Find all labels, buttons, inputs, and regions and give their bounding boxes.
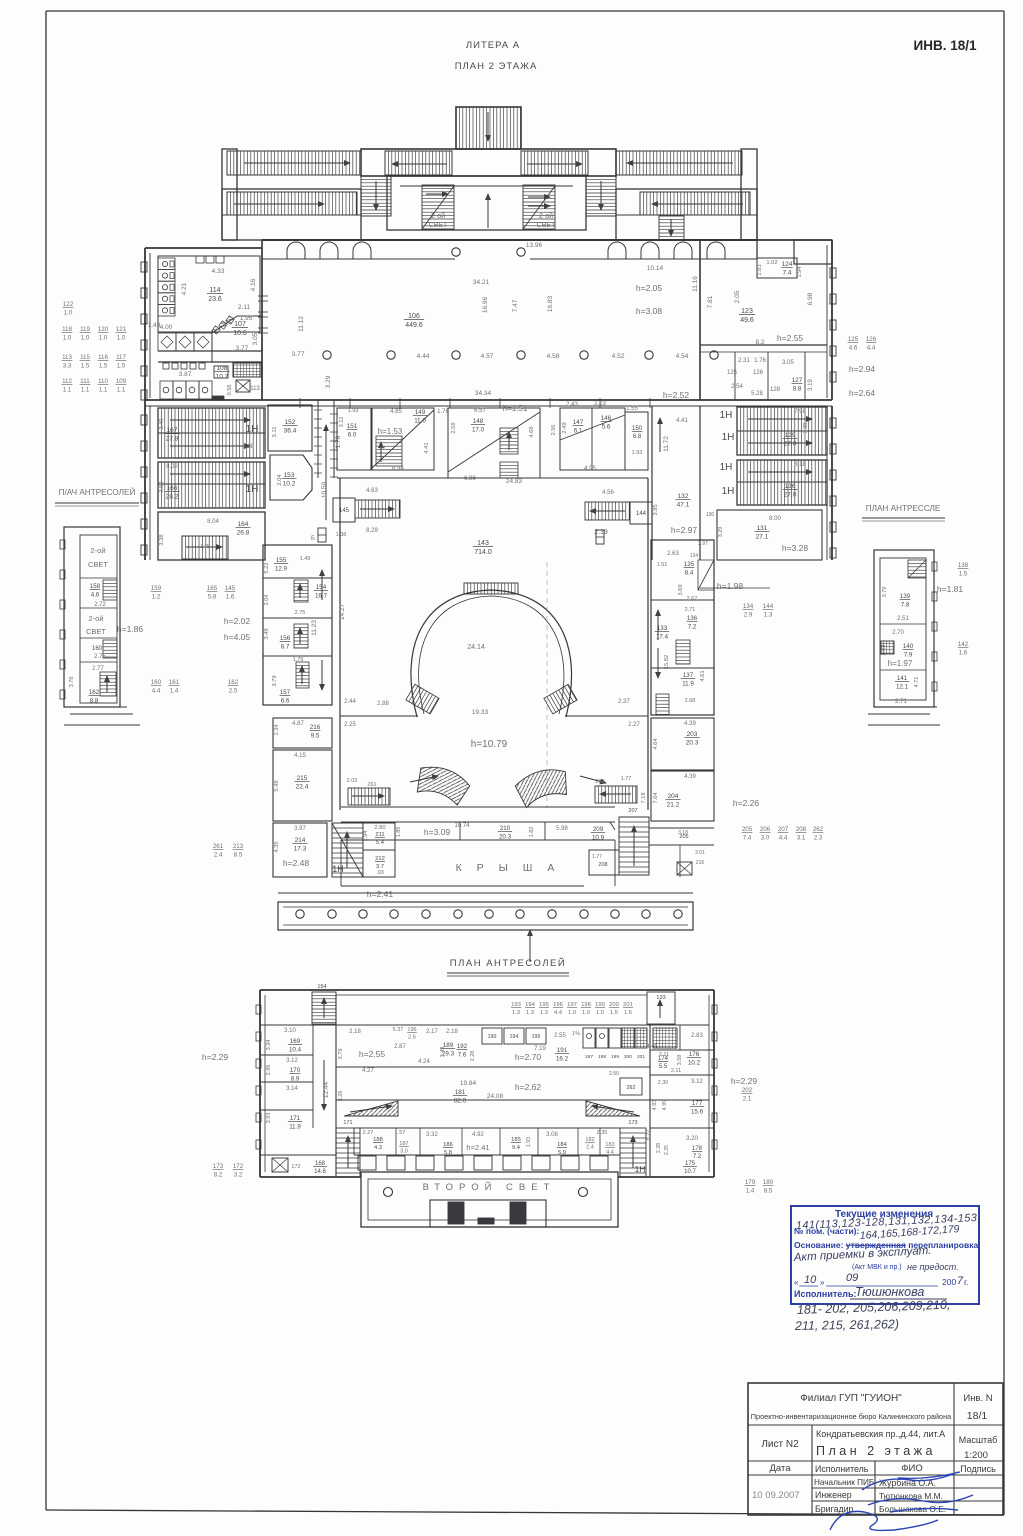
svg-text:3.18: 3.18	[678, 830, 688, 836]
svg-text:200: 200	[609, 1002, 619, 1008]
svg-text:157: 157	[280, 689, 291, 696]
svg-text:h=1.51: h=1.51	[503, 404, 528, 413]
svg-text:3.05: 3.05	[782, 360, 794, 366]
svg-text:216: 216	[696, 860, 705, 866]
svg-text:24.14: 24.14	[467, 644, 485, 651]
svg-text:1.6: 1.6	[959, 649, 968, 656]
svg-text:3.32: 3.32	[426, 1132, 438, 1138]
svg-text:107: 107	[234, 321, 246, 328]
svg-text:2-ой: 2-ой	[90, 546, 105, 555]
svg-text:2.35: 2.35	[597, 1130, 608, 1136]
svg-text:206: 206	[760, 826, 771, 833]
svg-text:1.3: 1.3	[526, 1010, 534, 1016]
svg-text:4.15: 4.15	[294, 753, 306, 759]
svg-text:1.4: 1.4	[746, 1187, 755, 1194]
svg-text:145: 145	[200, 544, 209, 550]
svg-text:4.21: 4.21	[181, 282, 188, 295]
svg-text:СВЕТ: СВЕТ	[86, 627, 106, 636]
svg-text:Тюшюнкова: Тюшюнкова	[855, 1285, 924, 1299]
svg-text:h=4.05: h=4.05	[224, 632, 251, 642]
svg-text:h=2.94: h=2.94	[849, 364, 876, 374]
svg-text:2.28: 2.28	[656, 1143, 662, 1153]
svg-text:2.50: 2.50	[609, 1071, 619, 1077]
svg-text:161: 161	[169, 679, 180, 686]
svg-text:214: 214	[295, 837, 306, 844]
svg-text:11.9: 11.9	[289, 1123, 301, 1130]
svg-text:16.7: 16.7	[315, 592, 328, 599]
svg-text:183: 183	[605, 1142, 614, 1148]
svg-text:1.3: 1.3	[764, 611, 773, 618]
svg-text:6.8: 6.8	[633, 434, 642, 440]
svg-text:4.6: 4.6	[849, 344, 858, 351]
svg-text:1.1: 1.1	[99, 386, 108, 393]
svg-text:1Н: 1Н	[246, 484, 259, 495]
svg-text:1Н: 1Н	[246, 424, 259, 435]
svg-text:714.0: 714.0	[474, 549, 492, 556]
svg-text:131: 131	[757, 525, 768, 532]
svg-text:5.9: 5.9	[558, 1150, 566, 1156]
svg-text:h=2.41: h=2.41	[466, 1143, 489, 1152]
svg-text:1.6: 1.6	[226, 593, 235, 600]
svg-text:127: 127	[792, 377, 803, 384]
svg-text:114: 114	[209, 287, 220, 294]
svg-text:4.56: 4.56	[602, 490, 614, 496]
svg-text:5.5: 5.5	[659, 1064, 668, 1070]
svg-text:125: 125	[727, 370, 738, 376]
svg-text:4.92: 4.92	[472, 1132, 484, 1138]
svg-text:204: 204	[668, 793, 679, 800]
svg-text:207: 207	[778, 826, 789, 833]
svg-text:212: 212	[375, 856, 385, 862]
svg-text:h=2.55: h=2.55	[359, 1049, 386, 1059]
svg-text:175: 175	[685, 1161, 696, 1167]
svg-text:171: 171	[290, 1115, 301, 1122]
svg-text:3.12: 3.12	[339, 417, 345, 428]
svg-text:1.92: 1.92	[375, 446, 386, 452]
svg-text:Инв. N: Инв. N	[963, 1393, 992, 1404]
svg-text:14.6: 14.6	[314, 1169, 326, 1175]
svg-text:2.68: 2.68	[685, 698, 696, 704]
svg-text:4.63: 4.63	[366, 488, 378, 494]
svg-text:2.71: 2.71	[685, 607, 696, 613]
svg-text:3.78: 3.78	[69, 677, 75, 688]
svg-text:3.59: 3.59	[159, 481, 165, 492]
svg-text:165: 165	[207, 585, 218, 592]
svg-text:2.5: 2.5	[229, 687, 238, 694]
svg-text:24.08: 24.08	[487, 1093, 504, 1100]
svg-text:2.55: 2.55	[554, 1033, 566, 1039]
svg-text:195: 195	[532, 1034, 541, 1040]
svg-text:109: 109	[116, 378, 127, 385]
svg-text:3.29: 3.29	[718, 527, 724, 538]
svg-text:3.78: 3.78	[338, 1048, 344, 1059]
svg-text:147: 147	[573, 419, 584, 426]
svg-text:2-ой: 2-ой	[88, 614, 103, 623]
svg-text:3.29: 3.29	[325, 375, 332, 388]
svg-text:3.87: 3.87	[179, 371, 192, 378]
svg-text:h=2.02: h=2.02	[224, 616, 251, 626]
svg-text:1.0: 1.0	[81, 334, 90, 341]
svg-text:21.2: 21.2	[667, 802, 680, 809]
svg-text:4.41: 4.41	[424, 442, 430, 453]
svg-text:162: 162	[228, 679, 239, 686]
svg-text:2.77: 2.77	[92, 666, 104, 672]
svg-text:139: 139	[900, 593, 911, 600]
svg-text:3.79: 3.79	[882, 587, 888, 598]
svg-text:3.10: 3.10	[284, 1028, 296, 1034]
svg-text:153: 153	[284, 472, 295, 479]
svg-text:10.14: 10.14	[647, 265, 664, 272]
svg-text:10 09.2007: 10 09.2007	[752, 1490, 800, 1501]
svg-text:28.2: 28.2	[166, 494, 179, 501]
svg-text:Филиал ГУП "ГУИОН": Филиал ГУП "ГУИОН"	[800, 1393, 902, 1404]
svg-text:194: 194	[525, 1002, 535, 1008]
svg-text:h=2.97: h=2.97	[671, 525, 698, 535]
svg-text:4.44: 4.44	[417, 353, 430, 360]
svg-text:2.05: 2.05	[734, 290, 741, 303]
svg-text:3.0: 3.0	[400, 1149, 408, 1155]
svg-text:2.51: 2.51	[897, 616, 909, 622]
svg-text:203: 203	[687, 731, 698, 738]
svg-text:2.75: 2.75	[94, 654, 106, 660]
svg-text:146: 146	[601, 415, 612, 422]
svg-text:4.71: 4.71	[914, 677, 920, 688]
svg-text:187: 187	[399, 1141, 408, 1147]
svg-text:h=2.52: h=2.52	[663, 390, 690, 400]
svg-text:1Н: 1Н	[722, 432, 735, 443]
svg-text:8.02: 8.02	[166, 464, 178, 470]
svg-text:h=1.81: h=1.81	[937, 584, 964, 594]
svg-text:196: 196	[407, 1027, 416, 1033]
svg-text:133: 133	[656, 995, 665, 1001]
svg-text:129: 129	[785, 432, 796, 439]
svg-text:155: 155	[276, 557, 287, 564]
svg-text:4.4: 4.4	[152, 687, 161, 694]
svg-text:166: 166	[167, 485, 178, 492]
svg-text:1.51: 1.51	[657, 562, 668, 568]
svg-text:h=10.79: h=10.79	[471, 739, 508, 750]
svg-text:7.9: 7.9	[904, 651, 913, 658]
svg-text:2.30: 2.30	[658, 1080, 669, 1086]
svg-text:1.93: 1.93	[348, 408, 359, 414]
svg-text:4.4: 4.4	[554, 1010, 563, 1016]
svg-text:106: 106	[408, 313, 420, 320]
svg-text:2-ой: 2-ой	[539, 212, 553, 220]
svg-text:1.3: 1.3	[512, 1010, 520, 1016]
svg-text:3.19: 3.19	[808, 379, 814, 391]
svg-text:200: 200	[624, 1054, 632, 1060]
svg-text:4.95: 4.95	[584, 466, 596, 472]
svg-text:ПЛАН АНТРЕССЛЕ: ПЛАН АНТРЕССЛЕ	[866, 504, 941, 513]
svg-text:8.2: 8.2	[214, 1171, 223, 1178]
svg-text:160: 160	[151, 679, 162, 686]
svg-text:7.18: 7.18	[641, 792, 647, 803]
svg-text:ПЛАН 2 ЭТАЖА: ПЛАН 2 ЭТАЖА	[455, 61, 538, 72]
svg-text:h=2.05: h=2.05	[636, 283, 663, 293]
svg-text:149: 149	[415, 409, 426, 416]
svg-text:14.27: 14.27	[339, 603, 346, 620]
svg-text:ФИО: ФИО	[901, 1463, 922, 1474]
svg-text:1Н: 1Н	[720, 410, 733, 421]
svg-text:5.6: 5.6	[602, 423, 611, 430]
svg-text:3.0: 3.0	[761, 834, 770, 841]
svg-text:27.0: 27.0	[784, 441, 797, 448]
svg-text:1.57: 1.57	[395, 1130, 406, 1136]
svg-text:262: 262	[813, 826, 824, 833]
svg-text:1.76: 1.76	[754, 358, 766, 364]
svg-text:3.14: 3.14	[286, 1086, 298, 1092]
svg-text:2.04: 2.04	[277, 474, 283, 486]
svg-text:№ пом. (части):: № пом. (части):	[794, 1226, 860, 1236]
svg-text:110: 110	[98, 378, 108, 385]
svg-text:261: 261	[213, 843, 224, 850]
svg-text:3.12: 3.12	[286, 1058, 298, 1064]
svg-text:1.1: 1.1	[63, 386, 72, 393]
svg-text:ПЛАН АНТРЕСОЛЕЙ: ПЛАН АНТРЕСОЛЕЙ	[450, 957, 566, 969]
svg-text:159: 159	[151, 585, 162, 592]
svg-text:118: 118	[62, 326, 72, 333]
svg-text:2.56: 2.56	[551, 425, 557, 436]
svg-text:4.00: 4.00	[160, 324, 173, 331]
svg-text:8.8: 8.8	[793, 385, 802, 392]
svg-text:2.83: 2.83	[691, 1033, 703, 1039]
svg-text:3.12: 3.12	[691, 1079, 703, 1085]
svg-text:1.4: 1.4	[170, 687, 179, 694]
svg-text:1.77: 1.77	[621, 776, 632, 782]
svg-text:126: 126	[866, 336, 877, 343]
svg-text:211, 215, 261,262): 211, 215, 261,262)	[794, 1317, 899, 1333]
svg-text:2.1: 2.1	[743, 1095, 752, 1102]
svg-text:3.34: 3.34	[266, 1040, 272, 1051]
svg-text:200: 200	[942, 1277, 956, 1287]
svg-text:Б: Б	[311, 536, 315, 542]
svg-text:8.5: 8.5	[234, 851, 243, 858]
svg-text:4.99: 4.99	[662, 1100, 668, 1111]
svg-text:113: 113	[62, 354, 72, 361]
svg-text:1.78: 1.78	[335, 435, 342, 448]
svg-text:1.0: 1.0	[63, 334, 72, 341]
svg-text:3.08: 3.08	[546, 1132, 558, 1138]
svg-text:198: 198	[598, 1054, 606, 1060]
svg-text:6.86: 6.86	[464, 476, 476, 482]
svg-text:2.17: 2.17	[426, 1029, 438, 1035]
svg-text:6.6: 6.6	[281, 697, 290, 704]
svg-text:4.3: 4.3	[374, 1145, 382, 1151]
svg-text:7.8: 7.8	[901, 601, 910, 608]
svg-text:10.2: 10.2	[283, 481, 296, 488]
svg-text:185: 185	[511, 1137, 521, 1143]
svg-text:Начальник ПИБ: Начальник ПИБ	[814, 1478, 874, 1487]
svg-text:3.11: 3.11	[272, 427, 278, 438]
svg-text:199: 199	[611, 1054, 619, 1060]
svg-text:156: 156	[280, 635, 291, 642]
svg-text:188: 188	[373, 1137, 383, 1143]
svg-text:197: 197	[567, 1002, 577, 1008]
svg-text:1.0: 1.0	[64, 309, 73, 316]
svg-text:47.1: 47.1	[677, 502, 690, 509]
svg-text:167: 167	[167, 427, 178, 434]
svg-text:119: 119	[80, 326, 90, 333]
svg-text:36.4: 36.4	[284, 428, 297, 435]
svg-text:176: 176	[689, 1051, 700, 1058]
svg-text:195: 195	[539, 1002, 549, 1008]
svg-text:1.5: 1.5	[99, 362, 108, 369]
svg-text:1.02: 1.02	[766, 260, 777, 266]
svg-text:4.57: 4.57	[481, 353, 494, 360]
svg-text:10.4: 10.4	[289, 1046, 302, 1053]
svg-text:202: 202	[742, 1087, 753, 1094]
svg-text:2.4: 2.4	[586, 1145, 594, 1151]
svg-text:1.55: 1.55	[626, 406, 638, 412]
svg-text:4.58: 4.58	[547, 353, 560, 360]
svg-text:27.1: 27.1	[756, 534, 769, 541]
svg-text:215: 215	[297, 775, 308, 782]
svg-text:24.83: 24.83	[506, 478, 523, 485]
svg-text:154: 154	[317, 984, 326, 990]
svg-text:h=3.28: h=3.28	[782, 543, 809, 553]
svg-text:2.87: 2.87	[394, 1044, 406, 1050]
svg-text:2.03: 2.03	[347, 778, 358, 784]
svg-text:1.82: 1.82	[529, 827, 535, 838]
svg-text:7.81: 7.81	[707, 295, 714, 308]
svg-text:2.01: 2.01	[695, 850, 705, 856]
svg-text:4.52: 4.52	[612, 353, 625, 360]
svg-text:6.98: 6.98	[807, 292, 814, 305]
svg-text:2.49: 2.49	[562, 422, 568, 433]
svg-text:2.80: 2.80	[374, 825, 385, 831]
svg-text:193: 193	[511, 1002, 521, 1008]
svg-text:8.04: 8.04	[207, 519, 219, 525]
svg-text:179: 179	[745, 1179, 756, 1186]
svg-text:1.5: 1.5	[81, 362, 90, 369]
svg-text:2.72: 2.72	[94, 602, 106, 608]
svg-text:201: 201	[637, 1054, 645, 1060]
svg-text:h=2.29: h=2.29	[202, 1052, 229, 1062]
svg-text:2.23: 2.23	[594, 401, 606, 407]
svg-text:10.59: 10.59	[321, 481, 328, 498]
svg-text:К Р Ы Ш А: К Р Ы Ш А	[456, 862, 561, 874]
svg-text:h=2.29: h=2.29	[731, 1076, 758, 1086]
svg-text:115: 115	[80, 354, 90, 361]
svg-text:h=2.41: h=2.41	[367, 889, 394, 899]
svg-text:174: 174	[658, 1056, 669, 1062]
svg-text:4.61: 4.61	[700, 670, 706, 681]
svg-text:7.2: 7.2	[688, 623, 697, 630]
svg-text:116: 116	[98, 354, 108, 361]
svg-text:1.95: 1.95	[240, 315, 253, 322]
svg-text:План 2 этажа: План 2 этажа	[816, 1444, 936, 1458]
svg-text:122: 122	[63, 301, 74, 308]
svg-text:7.47: 7.47	[512, 299, 519, 312]
svg-text:5.8: 5.8	[208, 593, 217, 600]
svg-text:23.6: 23.6	[208, 296, 222, 303]
svg-text:«: «	[794, 1278, 799, 1287]
svg-text:5.4: 5.4	[376, 840, 385, 846]
svg-text:1.0: 1.0	[117, 334, 126, 341]
svg-text:17.3: 17.3	[294, 846, 307, 853]
svg-text:16.96: 16.96	[482, 296, 489, 313]
svg-text:2.71: 2.71	[895, 699, 907, 705]
svg-text:124: 124	[782, 261, 793, 268]
svg-text:3.20: 3.20	[686, 1136, 698, 1142]
svg-text:h=3.08: h=3.08	[636, 306, 663, 316]
svg-text:113: 113	[250, 386, 260, 392]
svg-text:7.2: 7.2	[693, 1154, 702, 1160]
svg-text:181: 181	[455, 1089, 466, 1096]
svg-text:10.74: 10.74	[454, 823, 470, 829]
svg-text:2.6: 2.6	[408, 1035, 416, 1041]
svg-text:не предост.: не предост.	[907, 1262, 959, 1272]
svg-text:130: 130	[706, 512, 715, 518]
svg-text:145: 145	[225, 585, 236, 592]
svg-text:7.6: 7.6	[458, 1051, 467, 1058]
svg-text:h=2.62: h=2.62	[515, 1082, 542, 1092]
svg-text:144: 144	[636, 511, 647, 517]
svg-text:6.57: 6.57	[474, 408, 486, 414]
svg-text:1.0: 1.0	[99, 334, 108, 341]
svg-text:34.34: 34.34	[475, 390, 492, 397]
svg-text:198: 198	[581, 1002, 591, 1008]
svg-text:2.3: 2.3	[814, 834, 823, 841]
svg-text:5.22: 5.22	[264, 562, 270, 573]
svg-text:20.3: 20.3	[686, 740, 699, 747]
svg-text:2.18: 2.18	[349, 1029, 361, 1035]
svg-text:1.0: 1.0	[596, 1010, 604, 1016]
svg-text:1Н: 1Н	[720, 462, 733, 473]
svg-text:136: 136	[785, 483, 796, 490]
svg-text:3.77: 3.77	[292, 351, 305, 358]
svg-text:3.97: 3.97	[294, 826, 306, 832]
svg-text:112: 112	[62, 378, 72, 385]
svg-text:171: 171	[343, 1120, 352, 1126]
svg-text:2.75: 2.75	[295, 610, 306, 616]
svg-text:208: 208	[598, 862, 607, 868]
svg-text:3.38: 3.38	[159, 534, 165, 545]
svg-text:4.87: 4.87	[292, 721, 304, 727]
svg-text:191: 191	[557, 1047, 568, 1054]
svg-text:»: »	[820, 1278, 825, 1287]
svg-text:6.0: 6.0	[348, 431, 357, 438]
svg-text:г.: г.	[964, 1277, 968, 1287]
svg-text:3.05: 3.05	[252, 332, 259, 345]
svg-text:184: 184	[557, 1142, 567, 1148]
svg-text:3.93: 3.93	[266, 1113, 272, 1124]
svg-text:169: 169	[290, 1038, 301, 1045]
svg-text:2.70: 2.70	[892, 630, 904, 636]
svg-text:17.0: 17.0	[472, 426, 485, 433]
svg-text:140: 140	[903, 643, 914, 650]
svg-text:8.18: 8.18	[242, 444, 254, 450]
svg-text:5.48: 5.48	[274, 780, 280, 791]
svg-text:194: 194	[510, 1034, 519, 1040]
svg-text:1.38: 1.38	[336, 532, 347, 538]
svg-text:7.98: 7.98	[794, 409, 806, 415]
svg-text:261: 261	[367, 782, 376, 788]
svg-text:82.0: 82.0	[454, 1097, 467, 1104]
svg-text:3.26: 3.26	[338, 1091, 344, 1102]
svg-text:111: 111	[80, 378, 90, 385]
svg-text:СВЕТ: СВЕТ	[429, 222, 448, 229]
svg-text:173: 173	[628, 1120, 637, 1126]
svg-text:134: 134	[690, 553, 699, 559]
svg-text:108: 108	[217, 365, 228, 372]
svg-text:18/1: 18/1	[967, 1410, 988, 1422]
svg-text:11.16: 11.16	[692, 276, 699, 292]
svg-text:125: 125	[848, 336, 859, 343]
svg-text:1.2: 1.2	[152, 593, 161, 600]
svg-text:4.33: 4.33	[212, 268, 225, 275]
svg-text:9.4: 9.4	[512, 1145, 521, 1151]
